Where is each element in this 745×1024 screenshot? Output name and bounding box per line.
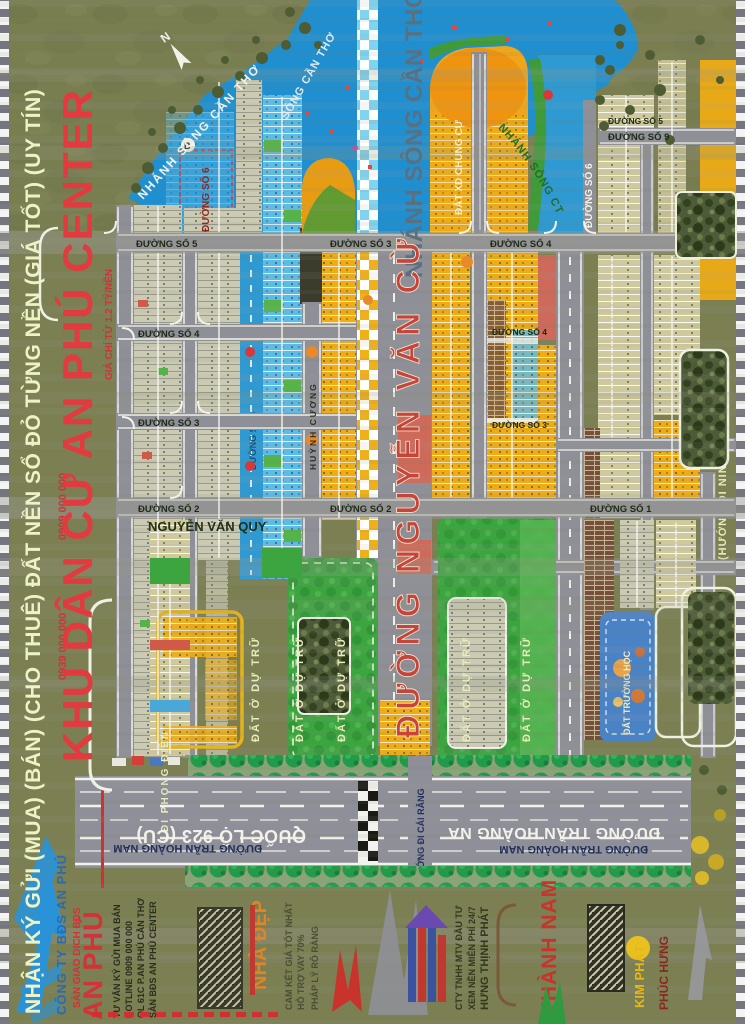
svg-text:CTY TNHH MTV ĐẦU TƯ: CTY TNHH MTV ĐẦU TƯ bbox=[454, 905, 464, 1010]
svg-text:ĐẤT Ở DỰ TRỮ: ĐẤT Ở DỰ TRỮ bbox=[293, 636, 306, 742]
svg-text:KHU DÂN CƯ AN PHÚ CENTER: KHU DÂN CƯ AN PHÚ CENTER bbox=[53, 88, 101, 762]
svg-text:ĐƯỜNG SỐ 1: ĐƯỜNG SỐ 1 bbox=[590, 503, 652, 515]
svg-text:ĐƯỜNG SỐ 4: ĐƯỜNG SỐ 4 bbox=[138, 328, 200, 340]
svg-text:ĐẤT Ở DỰ TRỮ: ĐẤT Ở DỰ TRỮ bbox=[520, 636, 533, 742]
svg-text:PHÚC HƯNG: PHÚC HƯNG bbox=[656, 936, 671, 1010]
svg-text:KIM PHÁT: KIM PHÁT bbox=[632, 945, 647, 1008]
svg-text:ĐƯỜNG SỐ 9: ĐƯỜNG SỐ 9 bbox=[608, 131, 669, 143]
svg-text:ĐẤT Ở DỰ TRỮ: ĐẤT Ở DỰ TRỮ bbox=[249, 636, 262, 742]
svg-text:HOTLINE 0909 000 000: HOTLINE 0909 000 000 bbox=[124, 921, 134, 1018]
svg-text:NHẬN KÝ GỬI (MUA) (BÁN) (CHO T: NHẬN KÝ GỬI (MUA) (BÁN) (CHO THUÊ) ĐẤT N… bbox=[21, 89, 45, 1014]
svg-text:SÀN GIAO DỊCH BĐS: SÀN GIAO DỊCH BĐS bbox=[70, 907, 83, 1008]
svg-text:ĐƯỜNG SỐ 6: ĐƯỜNG SỐ 6 bbox=[581, 163, 595, 228]
svg-text:ĐƯỜNG SỐ 2: ĐƯỜNG SỐ 2 bbox=[330, 503, 391, 515]
svg-text:TƯ VẤN KÝ GỬI MUA BÁN: TƯ VẤN KÝ GỬI MUA BÁN bbox=[111, 904, 122, 1018]
svg-text:NGUYỄN VĂN QUY: NGUYỄN VĂN QUY bbox=[148, 519, 267, 534]
svg-text:ĐẤT Ở DỰ TRỮ: ĐẤT Ở DỰ TRỮ bbox=[460, 636, 473, 742]
svg-text:ĐƯỜNG TRẦN HOÀNG NAM: ĐƯỜNG TRẦN HOÀNG NAM bbox=[499, 843, 648, 856]
svg-text:ĐƯỜNG NGUYỄN VĂN CỪ: ĐƯỜNG NGUYỄN VĂN CỪ bbox=[390, 233, 426, 738]
svg-text:ĐƯỜNG SỐ 4: ĐƯỜNG SỐ 4 bbox=[492, 326, 547, 337]
svg-text:CÔNG TY BĐS AN PHÚ: CÔNG TY BĐS AN PHÚ bbox=[54, 854, 69, 1015]
svg-text:ĐƯỜNG SỐ 3: ĐƯỜNG SỐ 3 bbox=[492, 419, 547, 430]
svg-text:XEM NỀN MIỄN PHÍ 24/7: XEM NỀN MIỄN PHÍ 24/7 bbox=[466, 906, 477, 1010]
svg-text:ĐẤT XD CHUNG CƯ: ĐẤT XD CHUNG CƯ bbox=[452, 119, 465, 215]
svg-text:ĐƯỜNG TRẦN HOÀNG NAM: ĐƯỜNG TRẦN HOÀNG NAM bbox=[113, 842, 262, 855]
svg-text:HƯNG THỊNH PHÁT: HƯNG THỊNH PHÁT bbox=[478, 906, 491, 1010]
svg-text:SÀN BĐS AN PHÚ CENTER: SÀN BĐS AN PHÚ CENTER bbox=[147, 901, 158, 1018]
svg-text:ĐƯỜNG TRẦN HOÀNG NA: ĐƯỜNG TRẦN HOÀNG NA bbox=[448, 824, 660, 843]
svg-text:HỖ TRỢ VAY 70%: HỖ TRỢ VAY 70% bbox=[295, 934, 306, 1010]
svg-text:PHÁP LÝ RÕ RÀNG: PHÁP LÝ RÕ RÀNG bbox=[309, 926, 320, 1010]
svg-text:ĐƯỜNG SỐ 5: ĐƯỜNG SỐ 5 bbox=[608, 115, 663, 126]
svg-text:ĐƯỜNG SỐ 3: ĐƯỜNG SỐ 3 bbox=[330, 238, 391, 250]
svg-text:ĐƯỜNG SỐ 2: ĐƯỜNG SỐ 2 bbox=[138, 503, 199, 515]
svg-text:HUỲNH CƯƠNG: HUỲNH CƯƠNG bbox=[307, 382, 318, 470]
svg-text:ĐƯỜNG SỐ 4: ĐƯỜNG SỐ 4 bbox=[490, 238, 552, 250]
svg-text:ĐƯỜNG SỐ 3: ĐƯỜNG SỐ 3 bbox=[138, 417, 199, 429]
svg-text:QL 61C P.AN PHÚ CẦN THƠ: QL 61C P.AN PHÚ CẦN THƠ bbox=[135, 898, 146, 1018]
svg-text:ĐẤT Ở DỰ TRỮ: ĐẤT Ở DỰ TRỮ bbox=[335, 636, 348, 742]
svg-text:ĐƯỜNG SỐ 6: ĐƯỜNG SỐ 6 bbox=[198, 167, 212, 232]
svg-text:ĐƯỜNG SỐ 5: ĐƯỜNG SỐ 5 bbox=[136, 238, 198, 250]
svg-text:GIÁ CHỈ TỪ 1.2 TỶ/NỀN: GIÁ CHỈ TỪ 1.2 TỶ/NỀN bbox=[102, 269, 115, 380]
svg-text:CAM KẾT GIÁ TỐT NHẤT: CAM KẾT GIÁ TỐT NHẤT bbox=[283, 902, 294, 1010]
